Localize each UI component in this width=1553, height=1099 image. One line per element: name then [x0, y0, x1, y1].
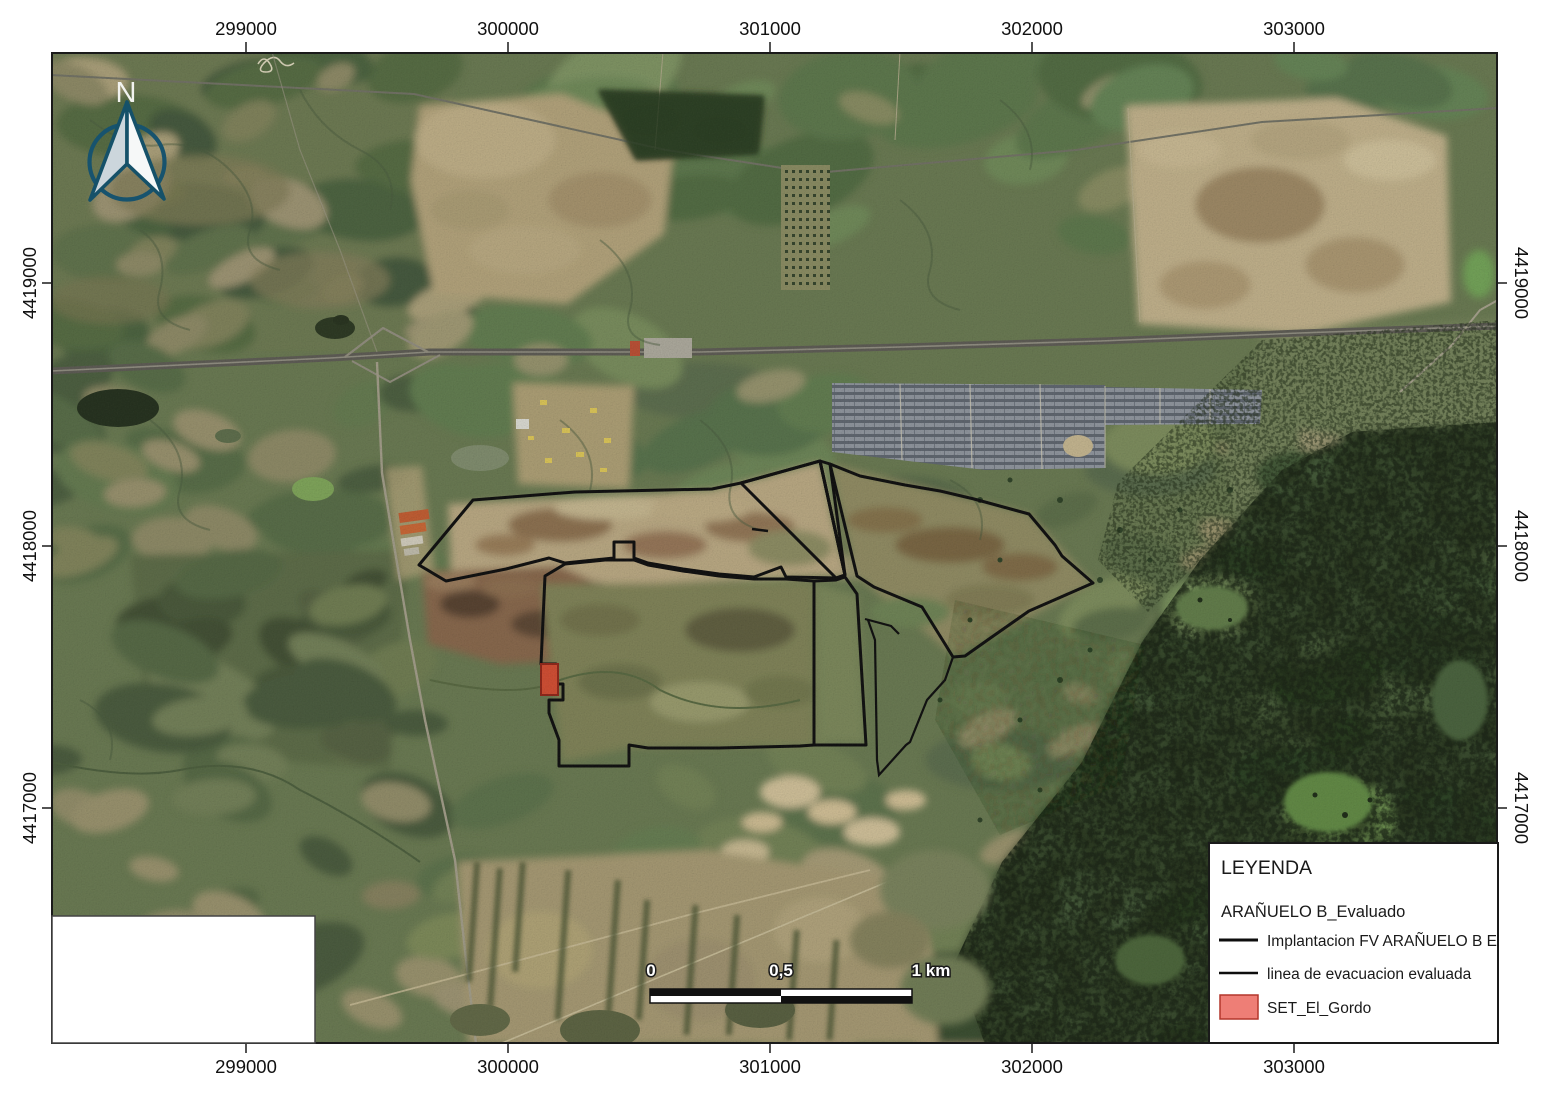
svg-text:4418000: 4418000: [19, 510, 40, 582]
svg-text:303000: 303000: [1263, 1056, 1325, 1077]
svg-text:linea de evacuacion evaluada: linea de evacuacion evaluada: [1267, 966, 1472, 983]
svg-text:LEYENDA: LEYENDA: [1221, 857, 1312, 879]
svg-text:299000: 299000: [215, 18, 277, 39]
svg-text:301000: 301000: [739, 18, 801, 39]
svg-text:4419000: 4419000: [1511, 247, 1532, 319]
svg-text:302000: 302000: [1001, 1056, 1063, 1077]
svg-text:0,5: 0,5: [769, 961, 793, 980]
svg-text:301000: 301000: [739, 1056, 801, 1077]
svg-text:4417000: 4417000: [1511, 772, 1532, 844]
svg-text:ARAÑUELO B_Evaluado: ARAÑUELO B_Evaluado: [1221, 901, 1405, 921]
svg-text:300000: 300000: [477, 1056, 539, 1077]
svg-text:300000: 300000: [477, 18, 539, 39]
svg-text:4417000: 4417000: [19, 772, 40, 844]
svg-text:299000: 299000: [215, 1056, 277, 1077]
svg-text:1 km: 1 km: [912, 961, 951, 980]
svg-text:303000: 303000: [1263, 18, 1325, 39]
svg-text:0: 0: [646, 961, 655, 980]
svg-text:Implantacion FV ARAÑUELO B E: Implantacion FV ARAÑUELO B E: [1267, 933, 1497, 950]
svg-text:SET_El_Gordo: SET_El_Gordo: [1267, 1000, 1371, 1017]
svg-text:4419000: 4419000: [19, 247, 40, 319]
svg-text:302000: 302000: [1001, 18, 1063, 39]
svg-text:4418000: 4418000: [1511, 510, 1532, 582]
